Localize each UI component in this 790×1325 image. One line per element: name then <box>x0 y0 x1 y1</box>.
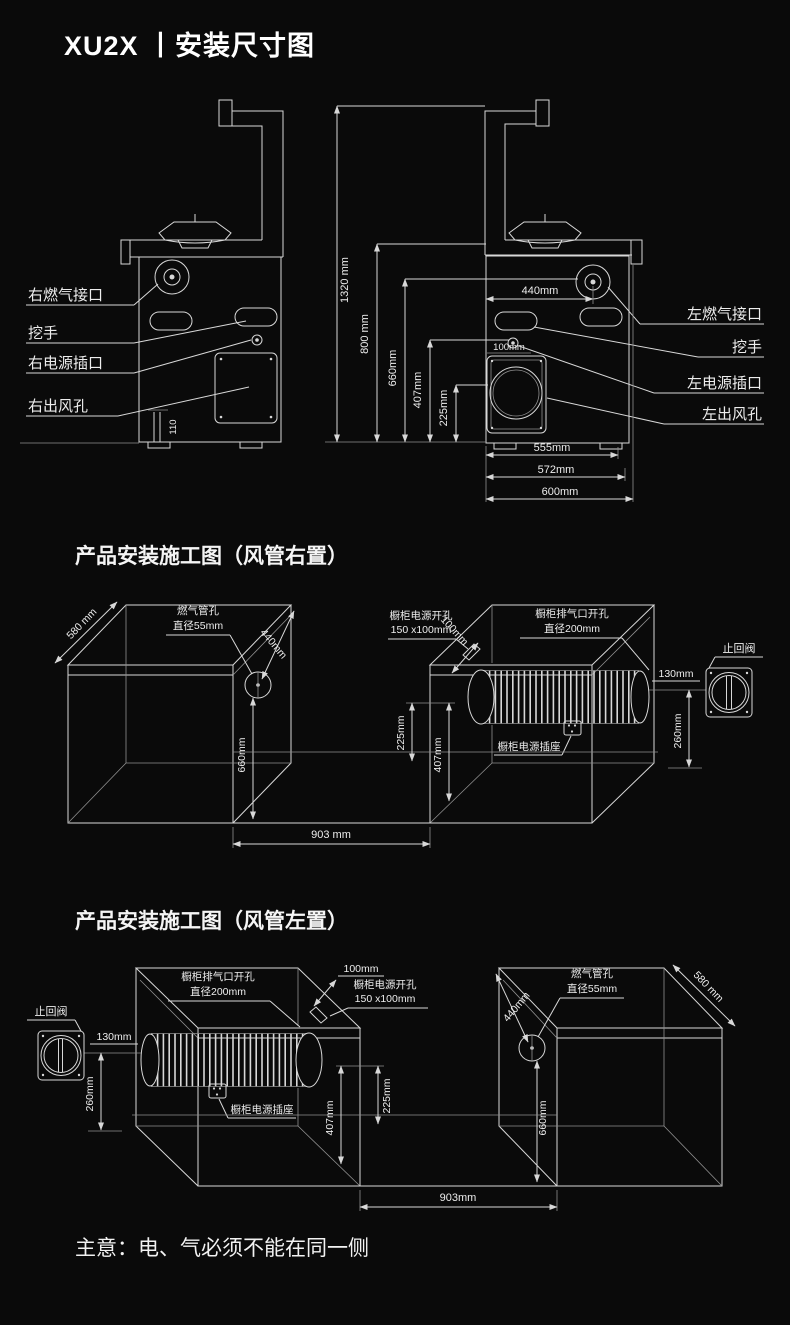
dimension-views-drawing: 110 右燃气接口 挖手 右电源插口 右出风孔 <box>0 90 790 520</box>
dim-span-903: 903 mm <box>311 829 351 841</box>
dim-225: 225mm <box>438 390 450 427</box>
dim-600: 600mm <box>542 486 579 498</box>
gas-cabinet-dims: 580 mm 燃气管孔 直径55mm 440mm 660mm <box>55 602 294 819</box>
floor-dims: 225mm 407mm 903 mm <box>233 703 658 848</box>
label-right-gas-inlet: 右燃气接口 <box>28 286 103 304</box>
dim-valve-height-260: 260mm <box>84 1076 96 1111</box>
dim-gas-660: 660mm <box>537 1100 549 1135</box>
gas-cabinet <box>68 605 291 823</box>
dim-407: 407mm <box>412 372 424 409</box>
dim-660: 660mm <box>387 350 399 387</box>
dim-110: 110 <box>168 419 179 434</box>
stove-left-view: 110 <box>20 100 283 448</box>
dim-555: 555mm <box>534 442 571 454</box>
label-power-hole-size: 150 x100mm <box>355 993 416 1005</box>
dim-power-offset-100: 100mm <box>343 963 378 975</box>
label-gas-pipe-hole: 燃气管孔 <box>177 604 219 617</box>
label-left-power-socket: 左电源插口 <box>687 375 762 392</box>
dim-572: 572mm <box>538 464 575 476</box>
footer-note: 主意：电、气必须不能在同一侧 <box>75 1232 369 1262</box>
dim-1320: 1320 mm <box>339 257 351 303</box>
label-vent-hole: 橱柜排气口开孔 <box>181 970 255 983</box>
label-vent-hole-dia: 直径200mm <box>190 985 246 998</box>
socket-icon <box>209 1084 226 1098</box>
dim-valve-gap-130: 130mm <box>658 668 693 680</box>
dim-duct-407: 407mm <box>432 737 444 772</box>
stove-right-view: 100mm <box>485 100 642 449</box>
dim-span-903: 903mm <box>440 1192 477 1204</box>
floor-dims: 225mm 407mm 903mm <box>132 1066 557 1211</box>
label-power-hole: 橱柜电源开孔 <box>354 978 417 991</box>
dim-duct-225: 225mm <box>395 715 407 750</box>
label-left-gas-inlet: 左燃气接口 <box>687 305 762 323</box>
dim-duct-407: 407mm <box>324 1100 336 1135</box>
install-left-duct-drawing: 580 mm 燃气管孔 直径55mm 440mm 660mm <box>0 948 790 1218</box>
label-vent-hole: 橱柜排气口开孔 <box>535 607 609 620</box>
section-right-duct-heading: 产品安装施工图（风管右置） <box>75 540 348 570</box>
label-handle-left-view: 挖手 <box>28 325 58 342</box>
label-gas-pipe-hole-dia: 直径55mm <box>173 619 223 632</box>
label-handle-right-view: 挖手 <box>732 339 762 356</box>
page: XU2X 丨安装尺寸图 <box>0 0 790 1325</box>
label-check-valve: 止回阀 <box>723 641 756 655</box>
dim-duct-225: 225mm <box>381 1078 393 1113</box>
callouts-right: 左燃气接口 挖手 左电源插口 左出风孔 <box>519 287 764 424</box>
label-cabinet-socket: 橱柜电源插座 <box>498 740 561 753</box>
dim-gas-660: 660mm <box>236 737 248 772</box>
label-cabinet-socket: 橱柜电源插座 <box>231 1103 294 1116</box>
gas-cabinet-dims: 580 mm 燃气管孔 直径55mm 440mm 660mm <box>496 965 735 1182</box>
dim-800: 800 mm <box>359 314 371 354</box>
dim-valve-gap-130: 130mm <box>96 1031 131 1043</box>
page-title: XU2X 丨安装尺寸图 <box>64 24 315 63</box>
label-vent-hole-dia: 直径200mm <box>544 622 600 635</box>
install-right-duct-drawing: 580 mm 燃气管孔 直径55mm 440mm 660mm <box>0 585 790 875</box>
label-gas-pipe-hole: 燃气管孔 <box>571 967 613 980</box>
label-right-power-socket: 右电源插口 <box>28 355 103 372</box>
label-check-valve: 止回阀 <box>35 1004 68 1018</box>
dim-100mm-socket: 100mm <box>493 342 525 353</box>
label-right-air-outlet: 右出风孔 <box>28 398 88 415</box>
label-gas-pipe-hole-dia: 直径55mm <box>567 982 617 995</box>
label-left-air-outlet: 左出风孔 <box>702 406 762 423</box>
socket-icon <box>564 721 581 735</box>
section-left-duct-heading: 产品安装施工图（风管左置） <box>75 905 348 935</box>
dim-440: 440mm <box>522 285 559 297</box>
dim-valve-height-260: 260mm <box>672 713 684 748</box>
gas-cabinet <box>499 968 722 1186</box>
